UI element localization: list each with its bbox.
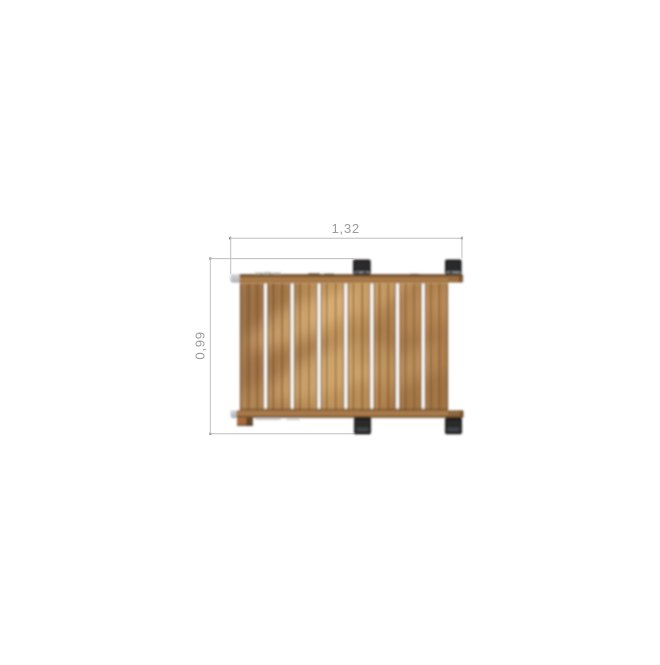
svg-text:0,99: 0,99	[193, 331, 208, 359]
svg-text:1,32: 1,32	[331, 221, 359, 236]
